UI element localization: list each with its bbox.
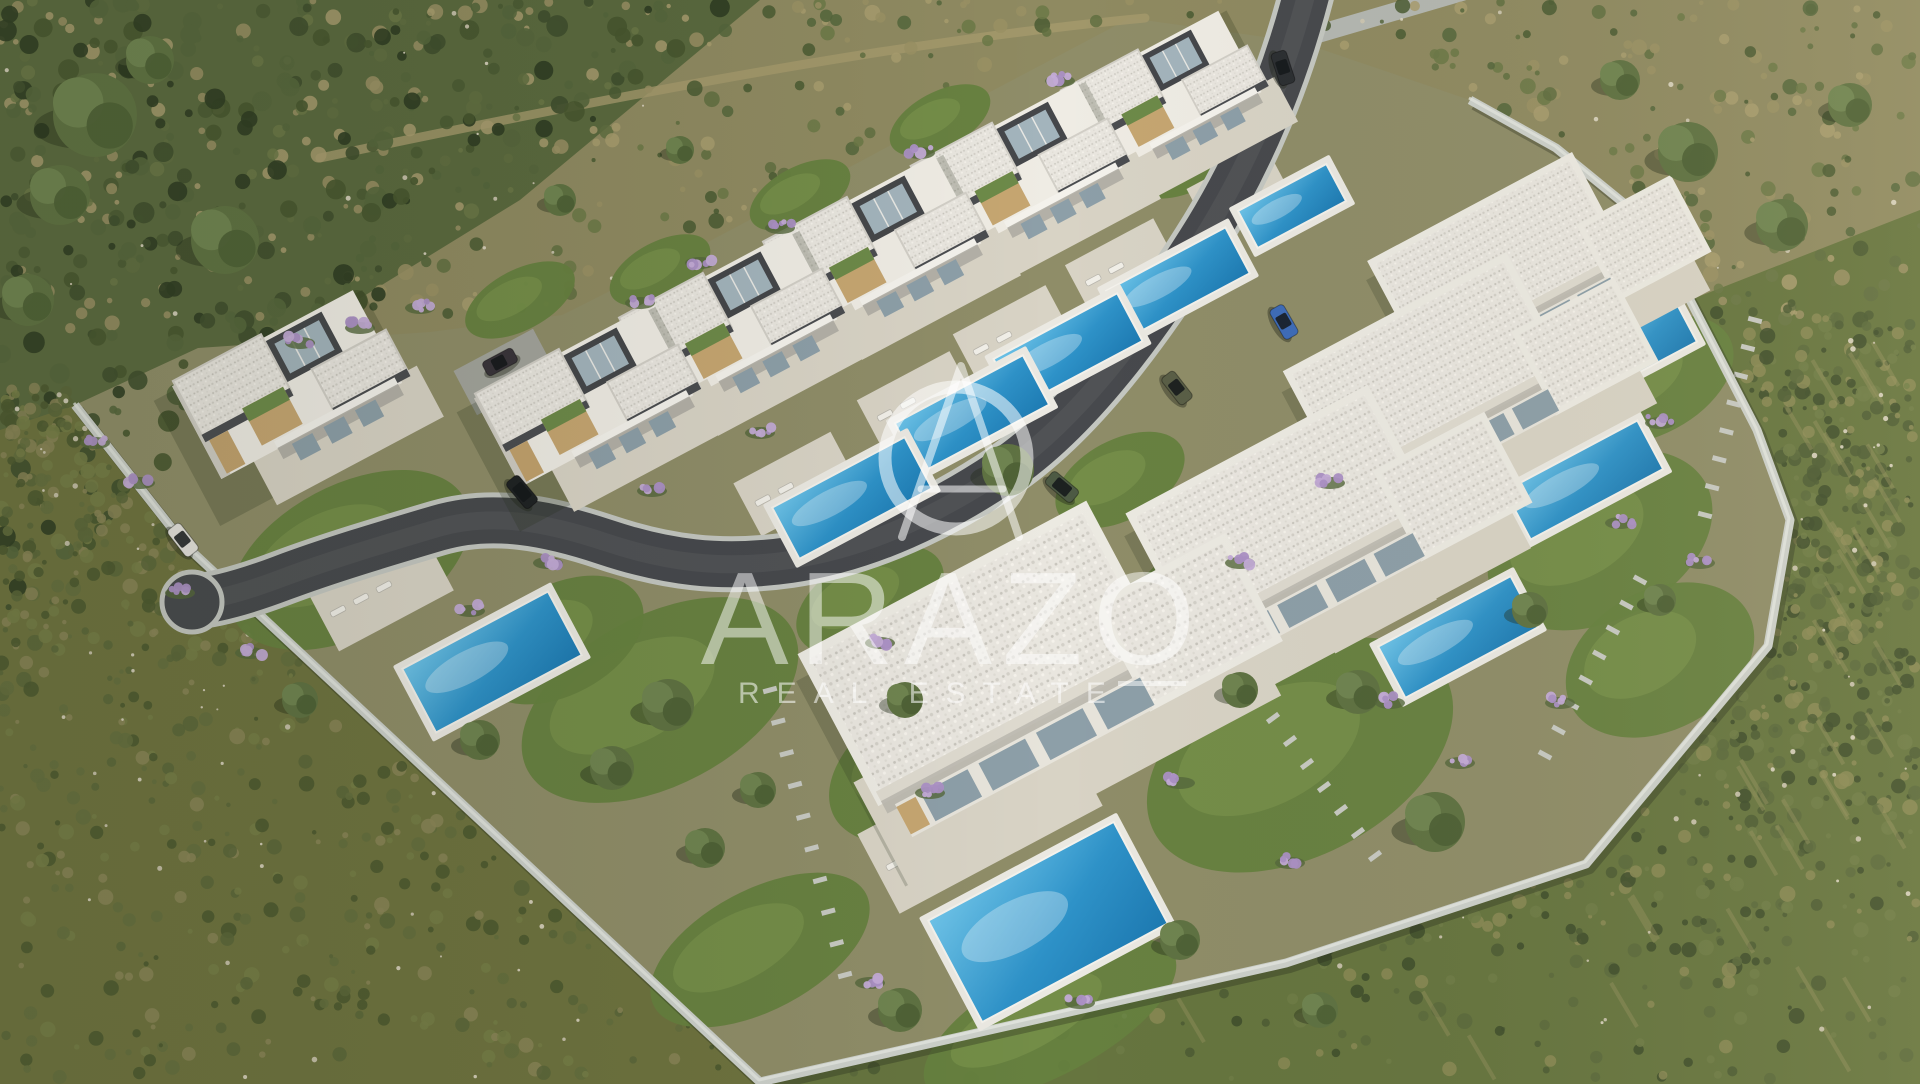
aerial-villa-development-render: ARAZO REAL ESTATE (0, 0, 1920, 1084)
brand-wordmark: ARAZO (701, 545, 1206, 692)
tagline-rule (1118, 681, 1186, 686)
brand-logo-icon (885, 366, 1027, 537)
watermark: ARAZO REAL ESTATE (0, 0, 1920, 1084)
brand-tagline: REAL ESTATE (738, 677, 1123, 710)
